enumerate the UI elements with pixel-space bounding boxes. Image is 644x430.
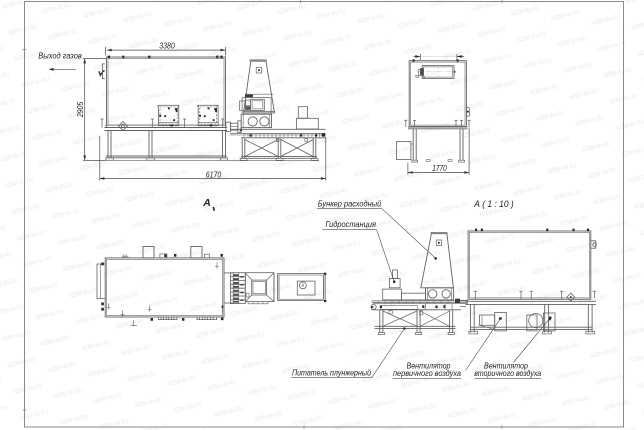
svg-text:А: А [202, 197, 211, 209]
svg-text:3380: 3380 [159, 40, 175, 50]
svg-text:первичного воздуха: первичного воздуха [393, 368, 461, 378]
svg-text:6170: 6170 [206, 169, 222, 179]
svg-text:А ( 1 : 10 ): А ( 1 : 10 ) [473, 199, 513, 209]
svg-text:Гидростанция: Гидростанция [325, 219, 376, 229]
svg-text:2905: 2905 [75, 102, 85, 118]
svg-text:вторичного воздуха: вторичного воздуха [474, 368, 541, 378]
svg-text:Выход газов: Выход газов [38, 52, 82, 61]
svg-text:Питатель плунжерный: Питатель плунжерный [292, 367, 371, 377]
svg-text:1770: 1770 [432, 163, 447, 173]
svg-text:Бункер расходный: Бункер расходный [318, 199, 382, 209]
